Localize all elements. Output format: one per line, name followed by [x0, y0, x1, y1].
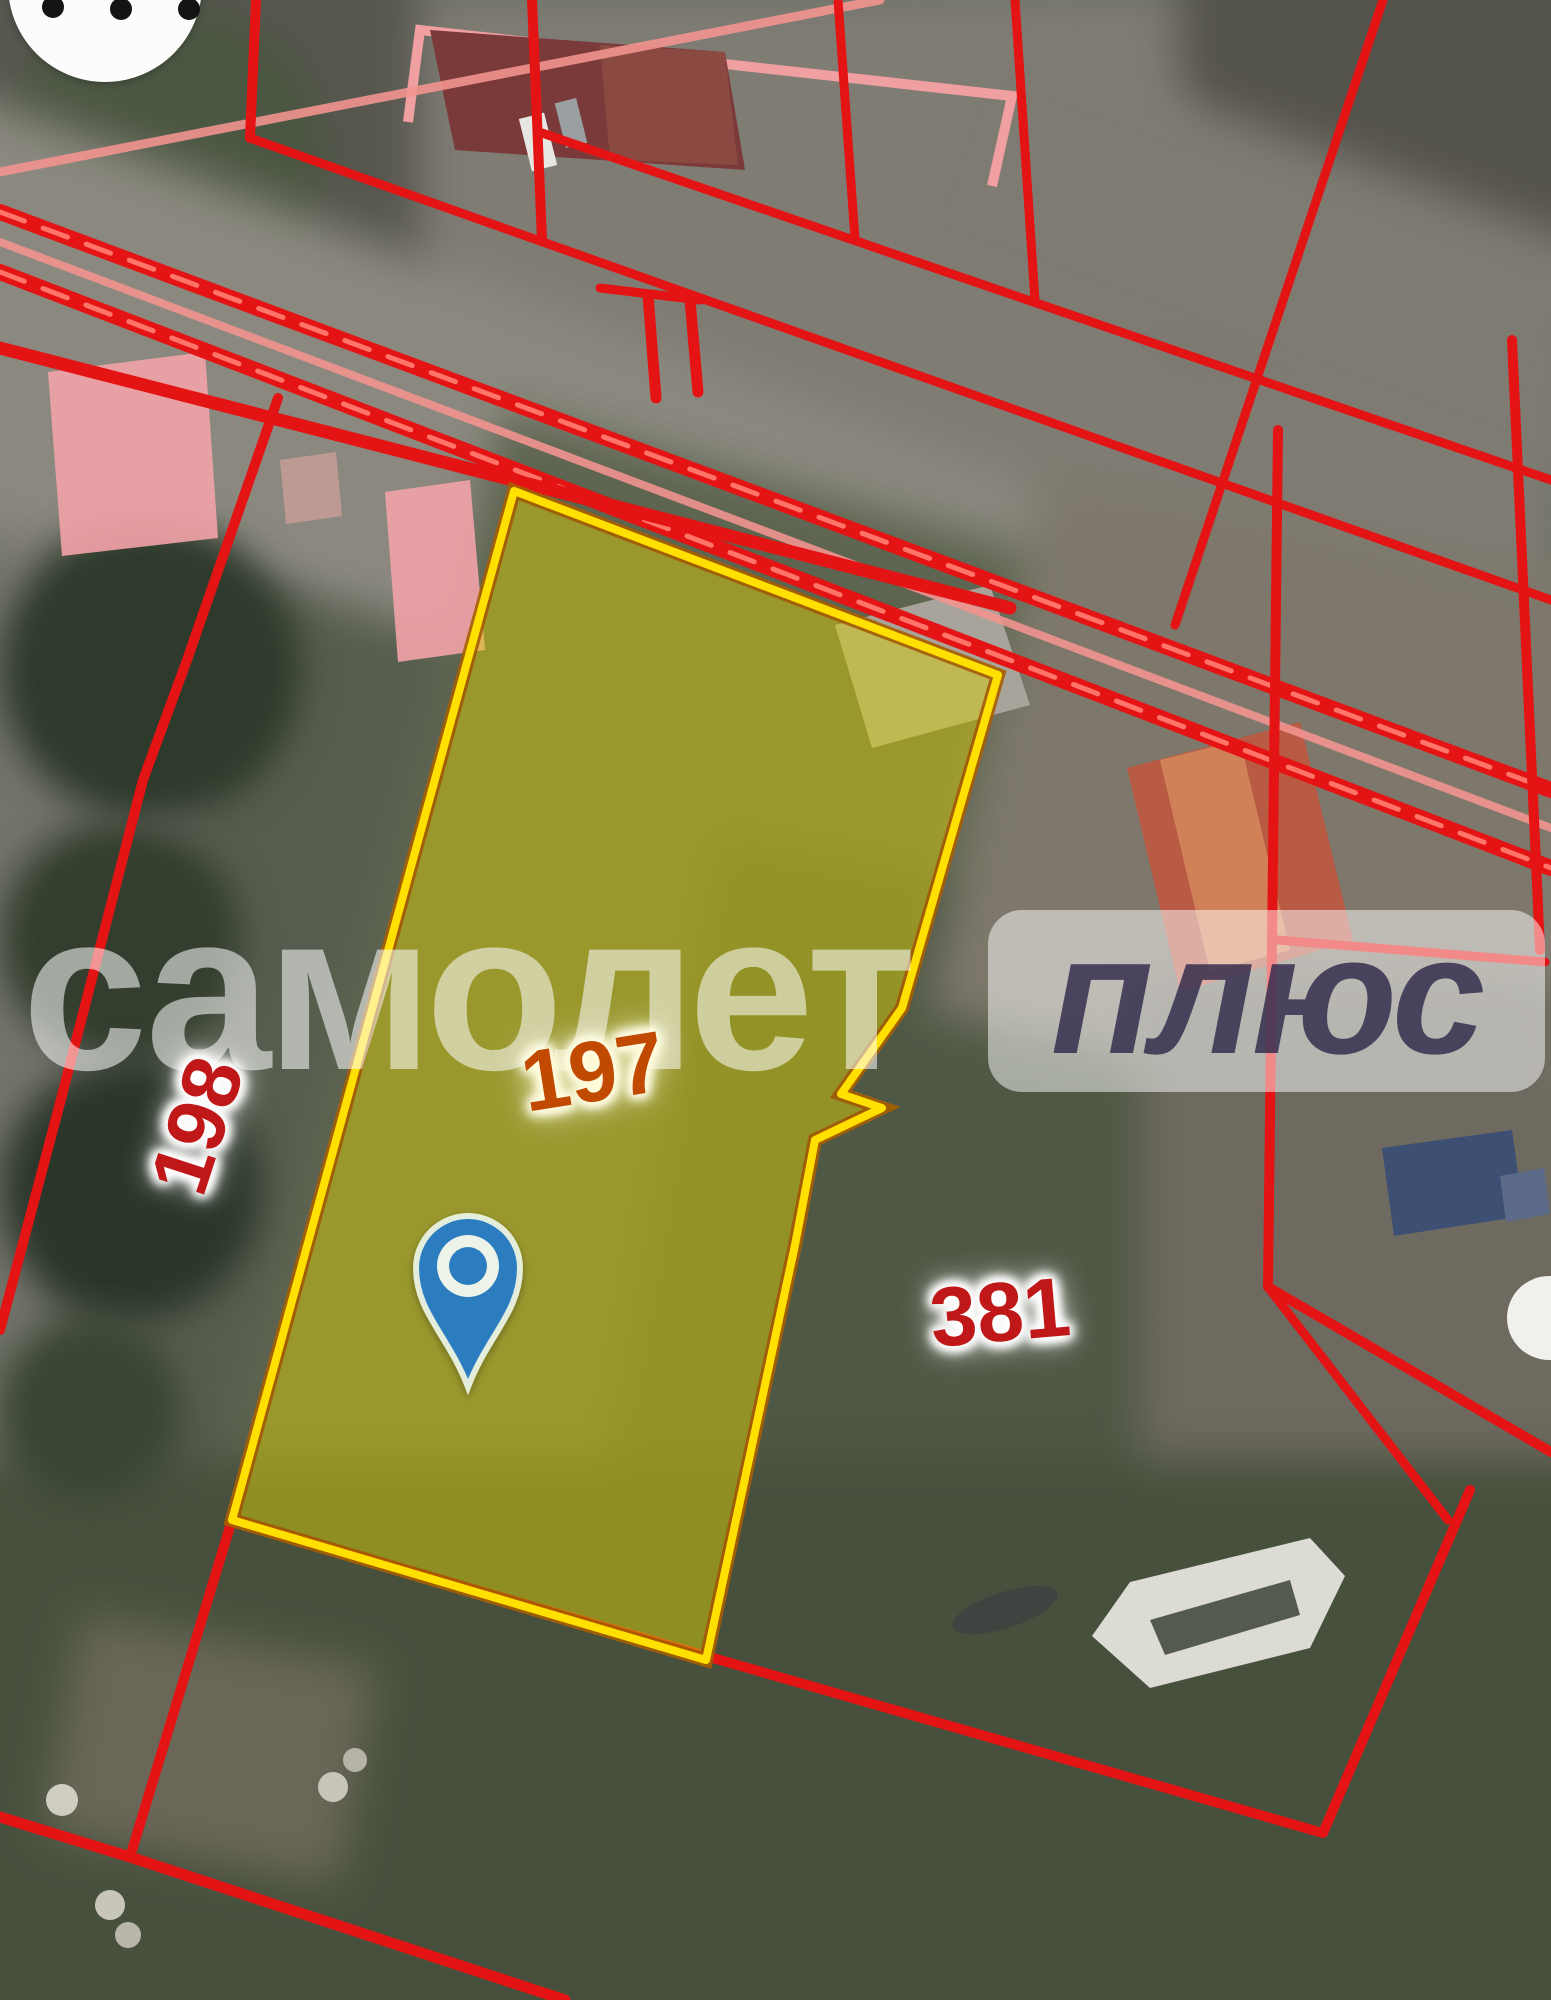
- more-options-icon: [42, 0, 64, 18]
- map-canvas[interactable]: самолет плюс 197 198 381: [0, 0, 1551, 2000]
- location-pin-icon[interactable]: [0, 0, 1551, 2000]
